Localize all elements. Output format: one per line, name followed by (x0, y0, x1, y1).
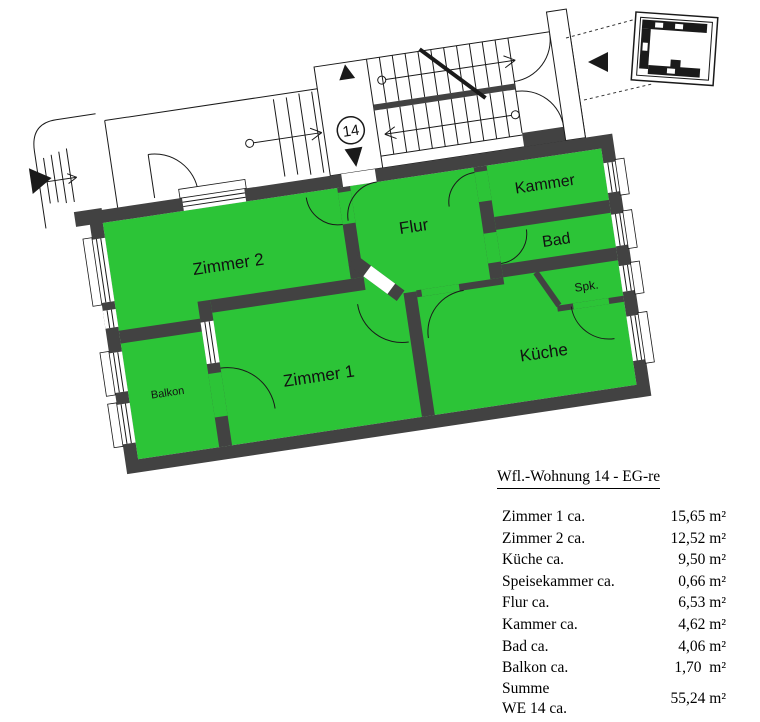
row-label: Flur ca. (502, 592, 678, 614)
row-value: 4,62 m² (678, 614, 726, 636)
row-label: Zimmer 2 ca. (502, 528, 671, 550)
row-label: Balkon ca. (502, 657, 674, 679)
row-value: 15,65 m² (671, 506, 726, 528)
floorplan-page: 14 Zimmer 2 Zimmer 1 Flur Kammer Bad Spk… (0, 0, 760, 722)
unit-number: 14 (341, 122, 360, 141)
table-row: Küche ca. 9,50 m² (502, 549, 726, 571)
sum-value: 55,24 m² (671, 688, 726, 710)
row-label: Zimmer 1 ca. (502, 506, 671, 528)
sum-label-line1: Summe (502, 679, 671, 699)
row-value: 6,53 m² (678, 592, 726, 614)
sum-label-line2: WE 14 ca. (502, 699, 671, 719)
table-row: Balkon ca. 1,70 m² (502, 657, 726, 679)
row-value: 12,52 m² (671, 528, 726, 550)
passage-arrow-icon (588, 52, 608, 72)
table-row: Zimmer 2 ca. 12,52 m² (502, 528, 726, 550)
area-table: Wfl.-Wohnung 14 - EG-re Zimmer 1 ca. 15,… (494, 468, 726, 719)
row-label: Küche ca. (502, 549, 678, 571)
sum-label: Summe WE 14 ca. (502, 679, 671, 719)
area-table-rows: Zimmer 1 ca. 15,65 m² Zimmer 2 ca. 12,52… (502, 506, 726, 719)
row-value: 9,50 m² (678, 549, 726, 571)
row-value: 1,70 m² (674, 657, 726, 679)
table-row: Bad ca. 4,06 m² (502, 636, 726, 658)
row-value: 0,66 m² (678, 571, 726, 593)
outbuilding (631, 12, 718, 86)
table-row: Kammer ca. 4,62 m² (502, 614, 726, 636)
table-row: Speisekammer ca. 0,66 m² (502, 571, 726, 593)
table-row: Zimmer 1 ca. 15,65 m² (502, 506, 726, 528)
row-label: Kammer ca. (502, 614, 678, 636)
row-value: 4,06 m² (678, 636, 726, 658)
row-label: Speisekammer ca. (502, 571, 678, 593)
area-table-title: Wfl.-Wohnung 14 - EG-re (497, 468, 660, 489)
apartment-plan: 14 Zimmer 2 Zimmer 1 Flur Kammer Bad Spk… (17, 4, 658, 475)
table-row: Flur ca. 6,53 m² (502, 592, 726, 614)
row-label: Bad ca. (502, 636, 678, 658)
table-sum-row: Summe WE 14 ca. 55,24 m² (502, 679, 726, 719)
